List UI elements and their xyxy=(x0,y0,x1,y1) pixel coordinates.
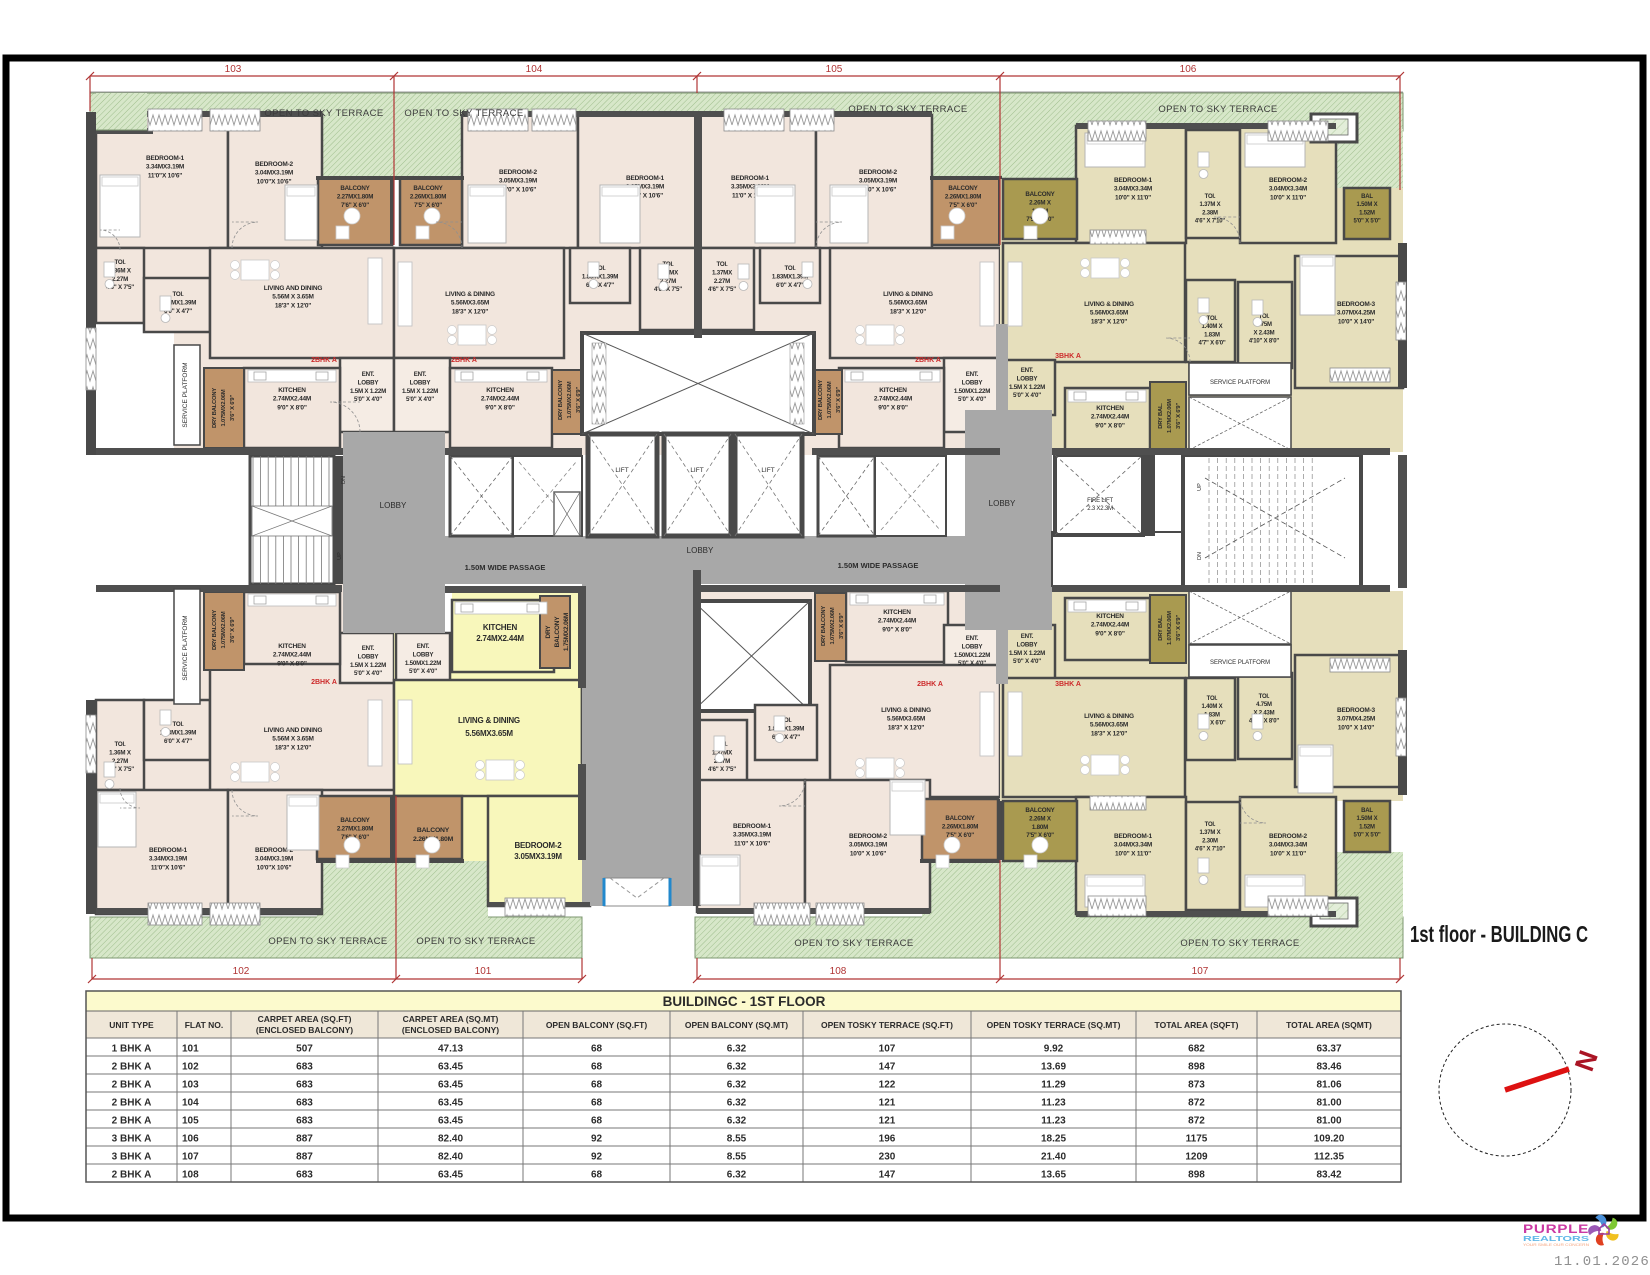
svg-text:LIFT: LIFT xyxy=(615,467,628,474)
svg-text:(ENCLOSED BALCONY): (ENCLOSED BALCONY) xyxy=(256,1025,353,1035)
svg-text:68: 68 xyxy=(591,1062,603,1073)
svg-text:68: 68 xyxy=(591,1044,603,1055)
svg-text:63.45: 63.45 xyxy=(438,1098,463,1109)
svg-text:BEDROOM-2: BEDROOM-2 xyxy=(859,169,898,176)
svg-text:103: 103 xyxy=(225,64,242,75)
svg-text:10'0" X 11'0": 10'0" X 11'0" xyxy=(1115,850,1151,857)
svg-text:DN: DN xyxy=(341,476,347,484)
svg-text:3'6" X 6'9": 3'6" X 6'9" xyxy=(230,395,236,421)
svg-text:9'0" X 8'0": 9'0" X 8'0" xyxy=(277,404,307,411)
svg-text:11.23: 11.23 xyxy=(1041,1116,1066,1127)
svg-text:68: 68 xyxy=(591,1098,603,1109)
svg-text:OPEN TO SKY TERRACE: OPEN TO SKY TERRACE xyxy=(404,108,523,119)
svg-text:683: 683 xyxy=(296,1080,313,1091)
svg-text:898: 898 xyxy=(1188,1062,1205,1073)
svg-text:2 BHK A: 2 BHK A xyxy=(112,1098,152,1109)
svg-text:2.27MX1.80M: 2.27MX1.80M xyxy=(337,825,373,832)
svg-text:101: 101 xyxy=(475,966,492,977)
svg-text:82.40: 82.40 xyxy=(438,1152,463,1163)
svg-text:6'0" X 4'7": 6'0" X 4'7" xyxy=(164,738,192,745)
svg-text:11.29: 11.29 xyxy=(1041,1080,1066,1091)
svg-text:3'6" X 6'9": 3'6" X 6'9" xyxy=(839,613,845,639)
svg-text:5.56MX3.65M: 5.56MX3.65M xyxy=(451,300,489,307)
svg-text:KITCHEN: KITCHEN xyxy=(883,609,911,616)
svg-text:BALCONY: BALCONY xyxy=(340,185,370,192)
svg-text:BALCONY: BALCONY xyxy=(554,616,561,648)
svg-text:SERVICE PLATFORM: SERVICE PLATFORM xyxy=(182,362,189,427)
svg-text:122: 122 xyxy=(879,1080,896,1091)
svg-text:TOI.: TOI. xyxy=(1207,316,1218,322)
svg-text:FLAT NO.: FLAT NO. xyxy=(185,1020,224,1030)
svg-text:ENT.: ENT. xyxy=(966,371,979,378)
svg-text:683: 683 xyxy=(296,1170,313,1181)
svg-text:21.40: 21.40 xyxy=(1041,1152,1066,1163)
svg-text:TOI.: TOI. xyxy=(114,259,126,266)
svg-text:106: 106 xyxy=(182,1134,199,1145)
svg-text:196: 196 xyxy=(879,1134,896,1145)
svg-text:106: 106 xyxy=(1180,64,1197,75)
svg-text:2 BHK A: 2 BHK A xyxy=(112,1116,152,1127)
svg-text:107: 107 xyxy=(879,1044,896,1055)
svg-text:63.45: 63.45 xyxy=(438,1062,463,1073)
svg-text:BALCONY: BALCONY xyxy=(1025,807,1055,814)
svg-text:1.5M X 1.22M: 1.5M X 1.22M xyxy=(350,388,386,395)
svg-text:DRY BAL.: DRY BAL. xyxy=(1158,615,1164,641)
svg-text:BEDROOM-1: BEDROOM-1 xyxy=(149,847,188,854)
svg-text:81.00: 81.00 xyxy=(1316,1116,1341,1127)
svg-text:107: 107 xyxy=(1192,966,1209,977)
svg-text:LOBBY: LOBBY xyxy=(687,546,714,555)
svg-text:LOBBY: LOBBY xyxy=(380,501,407,510)
svg-text:TOTAL AREA (SQFT): TOTAL AREA (SQFT) xyxy=(1155,1020,1239,1030)
svg-text:3'6" X 6'9": 3'6" X 6'9" xyxy=(1176,615,1182,641)
svg-text:8.55: 8.55 xyxy=(727,1134,747,1145)
svg-text:1.075MX2.06M: 1.075MX2.06M xyxy=(221,611,227,648)
svg-text:DRY BALCONY: DRY BALCONY xyxy=(212,610,218,650)
svg-text:TOI.: TOI. xyxy=(1207,696,1218,702)
svg-text:5.56MX3.65M: 5.56MX3.65M xyxy=(1090,310,1128,317)
svg-text:2BHK A: 2BHK A xyxy=(451,357,477,364)
svg-text:BALCONY: BALCONY xyxy=(417,827,450,834)
svg-text:2.74MX2.44M: 2.74MX2.44M xyxy=(481,396,519,403)
svg-text:2.3 X2.3M: 2.3 X2.3M xyxy=(1087,506,1113,512)
svg-text:63.45: 63.45 xyxy=(438,1080,463,1091)
svg-text:3 BHK A: 3 BHK A xyxy=(112,1152,152,1163)
svg-text:1.52M: 1.52M xyxy=(1359,210,1375,216)
svg-text:3.35MX3.19M: 3.35MX3.19M xyxy=(733,832,771,839)
svg-text:4'7" X 6'0": 4'7" X 6'0" xyxy=(1198,341,1225,347)
svg-text:TOI.: TOI. xyxy=(1205,822,1216,828)
svg-text:BEDROOM-3: BEDROOM-3 xyxy=(1337,707,1376,714)
svg-text:UP: UP xyxy=(337,552,343,560)
svg-text:3.04MX3.34M: 3.04MX3.34M xyxy=(1114,186,1152,193)
svg-text:(ENCLOSED BALCONY): (ENCLOSED BALCONY) xyxy=(402,1025,499,1035)
svg-text:TOI.: TOI. xyxy=(172,291,184,298)
svg-text:2.74MX2.44M: 2.74MX2.44M xyxy=(273,396,311,403)
svg-text:BEDROOM-1: BEDROOM-1 xyxy=(731,175,770,182)
svg-text:1.37M X: 1.37M X xyxy=(1200,830,1221,836)
svg-text:5.56M X 3.65M: 5.56M X 3.65M xyxy=(272,294,313,301)
svg-text:LIVING & DINING: LIVING & DINING xyxy=(883,291,933,298)
svg-text:2 BHK A: 2 BHK A xyxy=(112,1062,152,1073)
svg-text:BEDROOM-1: BEDROOM-1 xyxy=(733,823,772,830)
svg-text:10'0" X 14'0": 10'0" X 14'0" xyxy=(1338,318,1374,325)
svg-text:1.52M: 1.52M xyxy=(1359,824,1375,830)
svg-text:1175: 1175 xyxy=(1186,1134,1208,1145)
svg-text:DRY BALCONY: DRY BALCONY xyxy=(558,380,564,420)
svg-text:1.40M X: 1.40M X xyxy=(1202,324,1223,330)
svg-text:TOTAL AREA (SQMT): TOTAL AREA (SQMT) xyxy=(1286,1020,1372,1030)
svg-text:104: 104 xyxy=(182,1098,199,1109)
svg-text:LIVING AND DINING: LIVING AND DINING xyxy=(264,285,323,292)
svg-text:2.38M: 2.38M xyxy=(1202,210,1218,216)
svg-text:507: 507 xyxy=(296,1044,313,1055)
svg-text:OPEN TO SKY TERRACE: OPEN TO SKY TERRACE xyxy=(1158,104,1277,115)
svg-text:LOBBY: LOBBY xyxy=(358,379,380,386)
svg-text:ENT.: ENT. xyxy=(414,371,427,378)
svg-text:LIFT: LIFT xyxy=(690,467,703,474)
svg-text:TOI.: TOI. xyxy=(716,261,728,268)
svg-text:1.50M WIDE PASSAGE: 1.50M WIDE PASSAGE xyxy=(465,563,546,572)
svg-text:5'0" X 4'0": 5'0" X 4'0" xyxy=(958,396,986,403)
svg-text:TOI.: TOI. xyxy=(1205,194,1216,200)
svg-text:2.74MX2.44M: 2.74MX2.44M xyxy=(273,652,311,659)
svg-text:3.05MX3.19M: 3.05MX3.19M xyxy=(499,178,537,185)
svg-text:UNIT TYPE: UNIT TYPE xyxy=(109,1020,154,1030)
svg-text:68: 68 xyxy=(591,1116,603,1127)
svg-text:X 2.43M: X 2.43M xyxy=(1254,330,1275,336)
svg-text:147: 147 xyxy=(879,1170,896,1181)
svg-text:LOBBY: LOBBY xyxy=(1017,375,1039,382)
svg-text:LIVING & DINING: LIVING & DINING xyxy=(458,716,520,725)
svg-text:BEDROOM-1: BEDROOM-1 xyxy=(146,155,185,162)
svg-text:3.04MX3.34M: 3.04MX3.34M xyxy=(1269,842,1307,849)
svg-text:1209: 1209 xyxy=(1185,1152,1208,1163)
svg-text:147: 147 xyxy=(879,1062,896,1073)
svg-text:3'6" X 6'9": 3'6" X 6'9" xyxy=(836,387,842,413)
svg-text:ENT.: ENT. xyxy=(362,371,375,378)
svg-text:YOUR SMILE OUR CONCERN: YOUR SMILE OUR CONCERN xyxy=(1523,1243,1590,1247)
svg-text:1.37M X: 1.37M X xyxy=(1200,202,1221,208)
svg-text:1.50MX1.22M: 1.50MX1.22M xyxy=(405,660,441,667)
svg-text:18'3" X 12'0": 18'3" X 12'0" xyxy=(275,302,311,309)
svg-text:4'10" X 8'0": 4'10" X 8'0" xyxy=(1249,339,1280,345)
svg-text:3.04MX3.19M: 3.04MX3.19M xyxy=(255,856,293,863)
svg-text:BAL: BAL xyxy=(1361,194,1373,200)
svg-text:10'0" X 10'6": 10'0" X 10'6" xyxy=(850,850,886,857)
svg-text:2.27M: 2.27M xyxy=(714,278,730,285)
svg-text:TOI.: TOI. xyxy=(114,741,126,748)
svg-text:OPEN TOSKY TERRACE (SQ.FT): OPEN TOSKY TERRACE (SQ.FT) xyxy=(821,1020,953,1030)
svg-text:5'0" X 4'0": 5'0" X 4'0" xyxy=(354,670,382,677)
svg-text:108: 108 xyxy=(182,1170,199,1181)
svg-text:UP: UP xyxy=(1197,483,1203,491)
svg-text:5'0" X 4'0": 5'0" X 4'0" xyxy=(406,396,434,403)
svg-text:1.5M X 1.22M: 1.5M X 1.22M xyxy=(350,662,386,669)
svg-text:63.45: 63.45 xyxy=(438,1170,463,1181)
svg-text:KITCHEN: KITCHEN xyxy=(879,387,907,394)
svg-text:OPEN TO SKY TERRACE: OPEN TO SKY TERRACE xyxy=(1180,938,1299,949)
svg-text:18'3" X 12'0": 18'3" X 12'0" xyxy=(452,308,488,315)
svg-text:2.26M X: 2.26M X xyxy=(1029,815,1052,822)
svg-text:872: 872 xyxy=(1188,1116,1205,1127)
svg-text:DRY BALCONY: DRY BALCONY xyxy=(821,606,827,646)
svg-text:105: 105 xyxy=(826,64,843,75)
svg-text:1.80M: 1.80M xyxy=(1032,824,1048,831)
svg-text:1.50MX1.22M: 1.50MX1.22M xyxy=(954,388,990,395)
svg-text:6.32: 6.32 xyxy=(727,1080,747,1091)
svg-text:18'3" X 12'0": 18'3" X 12'0" xyxy=(890,308,926,315)
svg-text:2BHK A: 2BHK A xyxy=(915,357,941,364)
svg-text:5.56M X 3.65M: 5.56M X 3.65M xyxy=(272,736,313,743)
svg-text:1.075MX2.06M: 1.075MX2.06M xyxy=(827,381,833,418)
svg-text:LOBBY: LOBBY xyxy=(962,643,984,650)
svg-text:LOBBY: LOBBY xyxy=(962,379,984,386)
svg-text:5'0" X 4'0": 5'0" X 4'0" xyxy=(1013,658,1041,665)
svg-text:872: 872 xyxy=(1188,1098,1205,1109)
svg-text:BALCONY: BALCONY xyxy=(945,815,975,822)
svg-text:1 BHK A: 1 BHK A xyxy=(112,1044,152,1055)
svg-text:LIVING & DINING: LIVING & DINING xyxy=(445,291,495,298)
svg-text:83.42: 83.42 xyxy=(1316,1170,1341,1181)
svg-text:1.5M X 1.22M: 1.5M X 1.22M xyxy=(1009,650,1045,657)
svg-text:CARPET AREA (SQ.MT): CARPET AREA (SQ.MT) xyxy=(403,1014,499,1024)
svg-text:3.05MX3.19M: 3.05MX3.19M xyxy=(514,852,562,861)
svg-text:7'6" X 6'0": 7'6" X 6'0" xyxy=(341,202,369,209)
svg-text:63.45: 63.45 xyxy=(438,1116,463,1127)
svg-text:104: 104 xyxy=(526,64,543,75)
svg-text:9'0" X 8'0": 9'0" X 8'0" xyxy=(1095,630,1125,637)
svg-text:10'0" X 11'0": 10'0" X 11'0" xyxy=(1270,194,1306,201)
svg-text:DRY BAL.: DRY BAL. xyxy=(1158,403,1164,429)
svg-text:OPEN TO SKY TERRACE: OPEN TO SKY TERRACE xyxy=(848,104,967,115)
svg-text:BALCONY: BALCONY xyxy=(1025,191,1055,198)
svg-text:63.37: 63.37 xyxy=(1316,1044,1341,1055)
svg-text:6.32: 6.32 xyxy=(727,1044,747,1055)
svg-text:LOBBY: LOBBY xyxy=(410,379,432,386)
svg-text:3.04MX3.34M: 3.04MX3.34M xyxy=(1114,842,1152,849)
svg-text:BAL: BAL xyxy=(1361,808,1373,814)
svg-text:9'0" X 8'0": 9'0" X 8'0" xyxy=(277,660,307,667)
svg-text:1st floor - BUILDING C: 1st floor - BUILDING C xyxy=(1410,921,1588,947)
svg-text:5.56MX3.65M: 5.56MX3.65M xyxy=(889,300,927,307)
svg-text:KITCHEN: KITCHEN xyxy=(486,387,514,394)
svg-text:BEDROOM-1: BEDROOM-1 xyxy=(1114,177,1153,184)
svg-text:121: 121 xyxy=(879,1116,896,1127)
svg-text:LIVING AND DINING: LIVING AND DINING xyxy=(264,727,323,734)
svg-text:1.36M X: 1.36M X xyxy=(109,749,132,756)
svg-text:887: 887 xyxy=(296,1134,313,1145)
svg-text:BALCONY: BALCONY xyxy=(948,185,978,192)
svg-text:10'0" X 14'0": 10'0" X 14'0" xyxy=(1338,724,1374,731)
svg-text:5.56MX3.65M: 5.56MX3.65M xyxy=(1090,722,1128,729)
svg-text:KITCHEN: KITCHEN xyxy=(278,387,306,394)
svg-text:2.26MX1.80M: 2.26MX1.80M xyxy=(942,823,978,830)
svg-text:5'0" X 4'0": 5'0" X 4'0" xyxy=(409,668,437,675)
svg-text:6.32: 6.32 xyxy=(727,1098,747,1109)
svg-text:2.27MX1.80M: 2.27MX1.80M xyxy=(337,193,373,200)
svg-text:OPEN BALCONY (SQ.MT): OPEN BALCONY (SQ.MT) xyxy=(685,1020,788,1030)
svg-text:OPEN BALCONY (SQ.FT): OPEN BALCONY (SQ.FT) xyxy=(546,1020,648,1030)
svg-text:KITCHEN: KITCHEN xyxy=(1096,405,1124,412)
svg-text:BEDROOM-1: BEDROOM-1 xyxy=(1114,833,1153,840)
svg-text:BALCONY: BALCONY xyxy=(413,185,443,192)
svg-text:4'6" X 7'10": 4'6" X 7'10" xyxy=(1195,847,1226,853)
svg-text:3.05MX3.19M: 3.05MX3.19M xyxy=(849,842,887,849)
svg-text:2.74MX2.44M: 2.74MX2.44M xyxy=(878,618,916,625)
svg-text:LOBBY: LOBBY xyxy=(1017,641,1039,648)
svg-text:2.26M X: 2.26M X xyxy=(1029,199,1052,206)
svg-text:2BHK A: 2BHK A xyxy=(311,679,337,686)
svg-text:1.5M X 1.22M: 1.5M X 1.22M xyxy=(1009,384,1045,391)
svg-text:18'3" X 12'0": 18'3" X 12'0" xyxy=(275,744,311,751)
svg-text:2.26MX1.80M: 2.26MX1.80M xyxy=(410,193,446,200)
svg-text:1.75MX2.06M: 1.75MX2.06M xyxy=(563,613,570,651)
svg-text:3BHK A: 3BHK A xyxy=(1055,353,1081,360)
svg-text:LIVING & DINING: LIVING & DINING xyxy=(881,707,931,714)
svg-text:2.26MX1.80M: 2.26MX1.80M xyxy=(945,193,981,200)
svg-text:OPEN TO SKY TERRACE: OPEN TO SKY TERRACE xyxy=(264,108,383,119)
svg-text:105: 105 xyxy=(182,1116,199,1127)
svg-text:BUILDINGC - 1ST FLOOR: BUILDINGC - 1ST FLOOR xyxy=(663,994,826,1009)
svg-text:112.35: 112.35 xyxy=(1314,1152,1344,1163)
svg-text:TOI.: TOI. xyxy=(172,721,184,728)
svg-text:1.07MX2.06M: 1.07MX2.06M xyxy=(1167,611,1173,645)
svg-text:BALCONY: BALCONY xyxy=(340,817,370,824)
svg-text:683: 683 xyxy=(296,1116,313,1127)
svg-text:82.40: 82.40 xyxy=(438,1134,463,1145)
svg-text:DRY BALCONY: DRY BALCONY xyxy=(212,388,218,428)
svg-text:KITCHEN: KITCHEN xyxy=(483,623,518,632)
svg-text:13.65: 13.65 xyxy=(1041,1170,1066,1181)
svg-text:13.69: 13.69 xyxy=(1041,1062,1066,1073)
svg-text:9'0" X 8'0": 9'0" X 8'0" xyxy=(1095,422,1125,429)
svg-text:1.07MX2.06M: 1.07MX2.06M xyxy=(1167,399,1173,433)
svg-text:102: 102 xyxy=(233,966,250,977)
svg-text:683: 683 xyxy=(296,1098,313,1109)
svg-text:109.20: 109.20 xyxy=(1314,1134,1345,1145)
svg-text:1.075MX2.06M: 1.075MX2.06M xyxy=(567,381,573,418)
svg-text:92: 92 xyxy=(591,1152,603,1163)
svg-text:682: 682 xyxy=(1188,1044,1205,1055)
svg-text:OPEN TO SKY TERRACE: OPEN TO SKY TERRACE xyxy=(268,936,387,947)
svg-text:18.25: 18.25 xyxy=(1041,1134,1066,1145)
svg-text:1.83MX1.39M: 1.83MX1.39M xyxy=(582,273,618,280)
svg-text:FIRE LIFT: FIRE LIFT xyxy=(1087,498,1113,504)
svg-text:10'0"X 10'6": 10'0"X 10'6" xyxy=(257,178,292,185)
svg-text:1.50M X: 1.50M X xyxy=(1357,202,1378,208)
svg-text:TOI.: TOI. xyxy=(784,265,796,272)
svg-text:OPEN TO SKY TERRACE: OPEN TO SKY TERRACE xyxy=(416,936,535,947)
svg-text:CARPET AREA (SQ.FT): CARPET AREA (SQ.FT) xyxy=(258,1014,352,1024)
svg-text:REALTORS: REALTORS xyxy=(1523,1234,1589,1243)
svg-text:107: 107 xyxy=(182,1152,199,1163)
svg-text:10'0" X 11'0": 10'0" X 11'0" xyxy=(1115,194,1151,201)
svg-text:DRY BALCONY: DRY BALCONY xyxy=(818,380,824,420)
svg-text:1.075MX2.06M: 1.075MX2.06M xyxy=(221,389,227,426)
svg-text:121: 121 xyxy=(879,1098,896,1109)
svg-text:5'0" X 5'0": 5'0" X 5'0" xyxy=(1353,219,1380,225)
svg-text:BEDROOM-3: BEDROOM-3 xyxy=(1337,301,1376,308)
svg-text:1.83M: 1.83M xyxy=(1204,332,1220,338)
svg-text:7'5" X 6'0": 7'5" X 6'0" xyxy=(414,202,442,209)
svg-text:898: 898 xyxy=(1188,1170,1205,1181)
svg-text:2 BHK A: 2 BHK A xyxy=(112,1080,152,1091)
svg-text:3'6" X 6'9": 3'6" X 6'9" xyxy=(1176,403,1182,429)
svg-text:11'0" X 10'6": 11'0" X 10'6" xyxy=(734,840,770,847)
svg-text:3'6" X 6'9": 3'6" X 6'9" xyxy=(230,617,236,643)
svg-text:ENT.: ENT. xyxy=(417,643,430,650)
svg-text:68: 68 xyxy=(591,1080,603,1091)
svg-text:18'3" X 12'0": 18'3" X 12'0" xyxy=(1091,318,1127,325)
svg-text:3.07MX4.25M: 3.07MX4.25M xyxy=(1337,716,1375,723)
svg-text:1.50MX1.22M: 1.50MX1.22M xyxy=(954,652,990,659)
svg-text:10'0" X 11'0": 10'0" X 11'0" xyxy=(1270,850,1306,857)
svg-text:108: 108 xyxy=(830,966,847,977)
svg-text:BEDROOM-2: BEDROOM-2 xyxy=(1269,833,1308,840)
svg-text:BEDROOM-2: BEDROOM-2 xyxy=(255,161,294,168)
svg-text:LOBBY: LOBBY xyxy=(358,653,380,660)
svg-text:DRY: DRY xyxy=(545,625,552,639)
svg-text:873: 873 xyxy=(1188,1080,1205,1091)
svg-text:9.92: 9.92 xyxy=(1044,1044,1064,1055)
svg-text:SERVICE PLATFORM: SERVICE PLATFORM xyxy=(1210,380,1270,386)
svg-text:47.13: 47.13 xyxy=(438,1044,463,1055)
svg-text:ENT.: ENT. xyxy=(1021,633,1034,640)
svg-text:LOBBY: LOBBY xyxy=(413,651,435,658)
svg-text:1.37MX: 1.37MX xyxy=(712,269,733,276)
svg-text:KITCHEN: KITCHEN xyxy=(278,643,306,650)
svg-text:68: 68 xyxy=(591,1170,603,1181)
svg-text:3.04MX3.34M: 3.04MX3.34M xyxy=(1269,186,1307,193)
svg-text:102: 102 xyxy=(182,1062,199,1073)
svg-text:5.56MX3.65M: 5.56MX3.65M xyxy=(465,729,513,738)
svg-text:1.40M X: 1.40M X xyxy=(1202,704,1223,710)
svg-text:3 BHK A: 3 BHK A xyxy=(112,1134,152,1145)
svg-text:KITCHEN: KITCHEN xyxy=(1096,613,1124,620)
svg-text:887: 887 xyxy=(296,1152,313,1163)
svg-text:6.32: 6.32 xyxy=(727,1170,747,1181)
svg-text:BEDROOM-1: BEDROOM-1 xyxy=(626,175,665,182)
svg-text:5.56MX3.65M: 5.56MX3.65M xyxy=(887,716,925,723)
svg-text:6.32: 6.32 xyxy=(727,1062,747,1073)
svg-text:11'0"X 10'6": 11'0"X 10'6" xyxy=(151,864,185,871)
svg-text:2.74MX2.44M: 2.74MX2.44M xyxy=(476,634,524,643)
svg-text:6.32: 6.32 xyxy=(727,1116,747,1127)
svg-text:9'0" X 8'0": 9'0" X 8'0" xyxy=(485,404,515,411)
svg-text:11'0"X 10'6": 11'0"X 10'6" xyxy=(148,172,182,179)
svg-text:1.50M X: 1.50M X xyxy=(1357,816,1378,822)
svg-text:3BHK A: 3BHK A xyxy=(1055,681,1081,688)
svg-text:81.06: 81.06 xyxy=(1316,1080,1341,1091)
svg-text:2BHK A: 2BHK A xyxy=(311,357,337,364)
svg-text:LIVING & DINING: LIVING & DINING xyxy=(1084,301,1134,308)
svg-text:103: 103 xyxy=(182,1080,199,1091)
svg-text:18'3" X 12'0": 18'3" X 12'0" xyxy=(1091,730,1127,737)
svg-text:BEDROOM-2: BEDROOM-2 xyxy=(1269,177,1308,184)
svg-text:8.55: 8.55 xyxy=(727,1152,747,1163)
svg-text:18'3" X 12'0": 18'3" X 12'0" xyxy=(888,724,924,731)
svg-text:9'0" X 8'0": 9'0" X 8'0" xyxy=(878,404,908,411)
svg-text:7'5" X 6'0": 7'5" X 6'0" xyxy=(949,202,977,209)
svg-text:LOBBY: LOBBY xyxy=(989,499,1016,508)
svg-text:683: 683 xyxy=(296,1062,313,1073)
svg-text:2.74MX2.44M: 2.74MX2.44M xyxy=(1091,414,1129,421)
svg-text:2 BHK A: 2 BHK A xyxy=(112,1170,152,1181)
svg-text:5'0" X 4'0": 5'0" X 4'0" xyxy=(958,660,986,667)
svg-text:3.04MX3.19M: 3.04MX3.19M xyxy=(255,170,293,177)
svg-text:ENT.: ENT. xyxy=(362,645,375,652)
